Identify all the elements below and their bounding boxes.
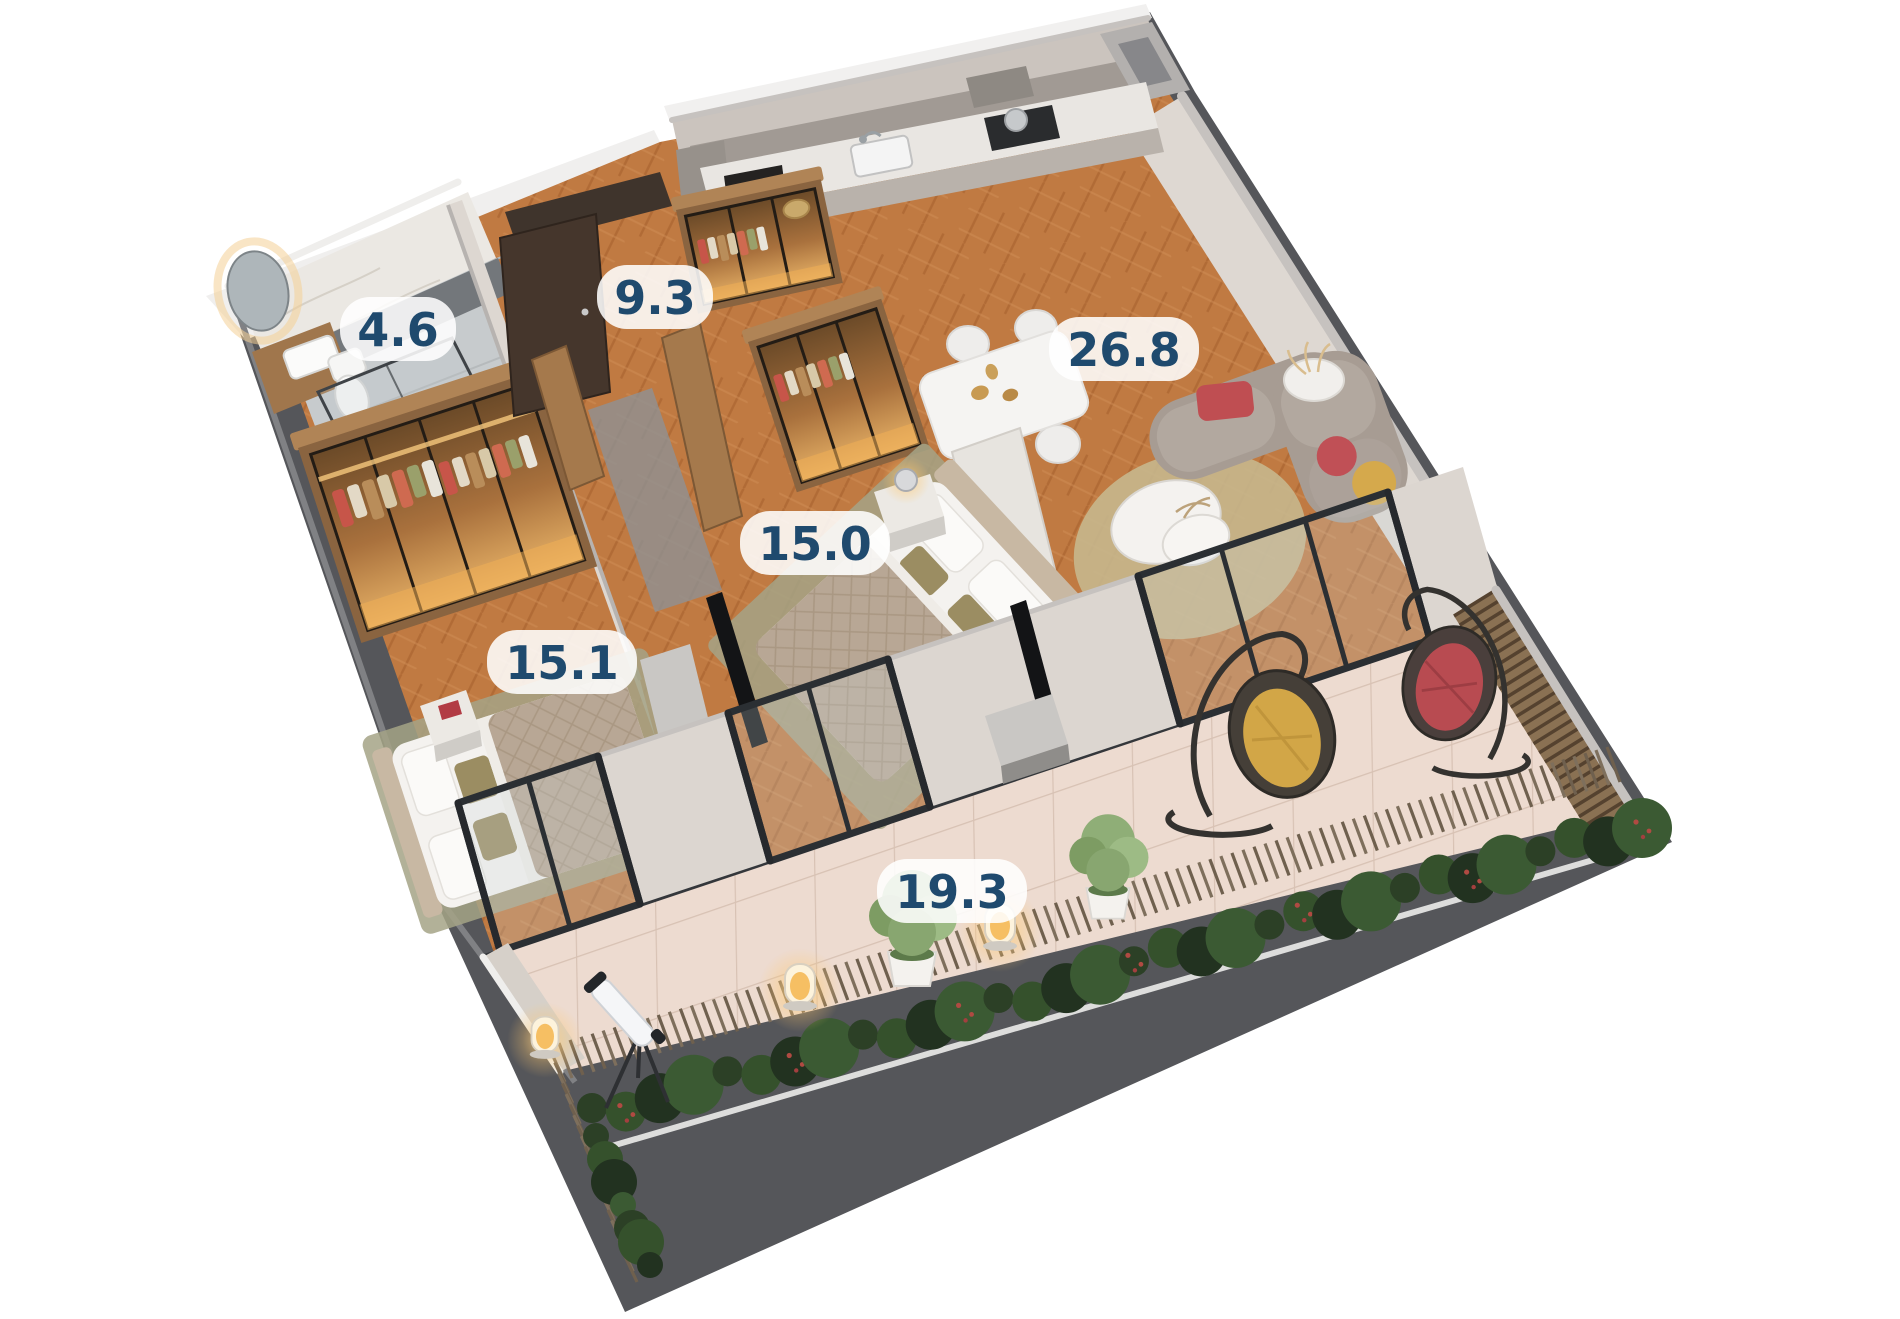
decor-shape: [787, 1053, 792, 1058]
dining-chair: [1036, 425, 1080, 463]
cooking-pot: [1005, 109, 1027, 131]
floor-plan-render: 4.6 9.3 26.8 15.0 15.1 19.3: [0, 0, 1900, 1319]
room-label-terrace: 19.3: [877, 859, 1027, 923]
decor-shape: [1125, 953, 1130, 958]
decor-shape: [1139, 962, 1144, 967]
room-area-bedroom-master: 15.0: [758, 517, 872, 571]
red-pillow: [1195, 380, 1254, 422]
room-label-bedroom-master: 15.0: [740, 511, 890, 575]
decor-shape: [1633, 819, 1638, 824]
decor-shape: [637, 1252, 663, 1278]
room-label-hallway: 9.3: [597, 265, 713, 329]
decor-shape: [1464, 869, 1469, 874]
terrace-lamp: [758, 948, 842, 1032]
decor-shape: [1471, 885, 1475, 889]
decor-shape: [625, 1118, 629, 1122]
room-area-hallway: 9.3: [614, 271, 696, 325]
decor-shape: [848, 1020, 878, 1050]
decor-shape: [712, 1056, 742, 1086]
decor-shape: [1295, 903, 1300, 908]
room-label-living-kitchen: 26.8: [1049, 317, 1199, 381]
decor-shape: [1390, 873, 1420, 903]
decor-shape: [1133, 968, 1137, 972]
terrace-lamp: [507, 1002, 583, 1078]
decor-shape: [1302, 918, 1306, 922]
decor-shape: [1641, 835, 1645, 839]
decor-shape: [577, 1093, 607, 1123]
room-area-bedroom-second: 15.1: [505, 636, 619, 690]
decor-shape: [1612, 798, 1672, 858]
decor-shape: [794, 1068, 798, 1072]
decor-shape: [630, 1112, 635, 1117]
decor-shape: [983, 983, 1013, 1013]
table-lamp: [895, 469, 917, 491]
room-label-bathroom: 4.6: [340, 297, 456, 361]
floor-plan-stage: 4.6 9.3 26.8 15.0 15.1 19.3: [0, 0, 1900, 1319]
decor-shape: [969, 1012, 974, 1017]
decor-shape: [1308, 912, 1313, 917]
decor-shape: [1254, 910, 1284, 940]
room-area-bathroom: 4.6: [357, 303, 439, 357]
decor-shape: [963, 1018, 967, 1022]
room-label-bedroom-second: 15.1: [487, 630, 637, 694]
decor-shape: [1647, 829, 1652, 834]
decor-shape: [617, 1103, 622, 1108]
decor-shape: [1525, 836, 1555, 866]
decor-shape: [956, 1003, 961, 1008]
room-area-living: 26.8: [1067, 323, 1181, 377]
room-area-terrace: 19.3: [895, 865, 1009, 919]
